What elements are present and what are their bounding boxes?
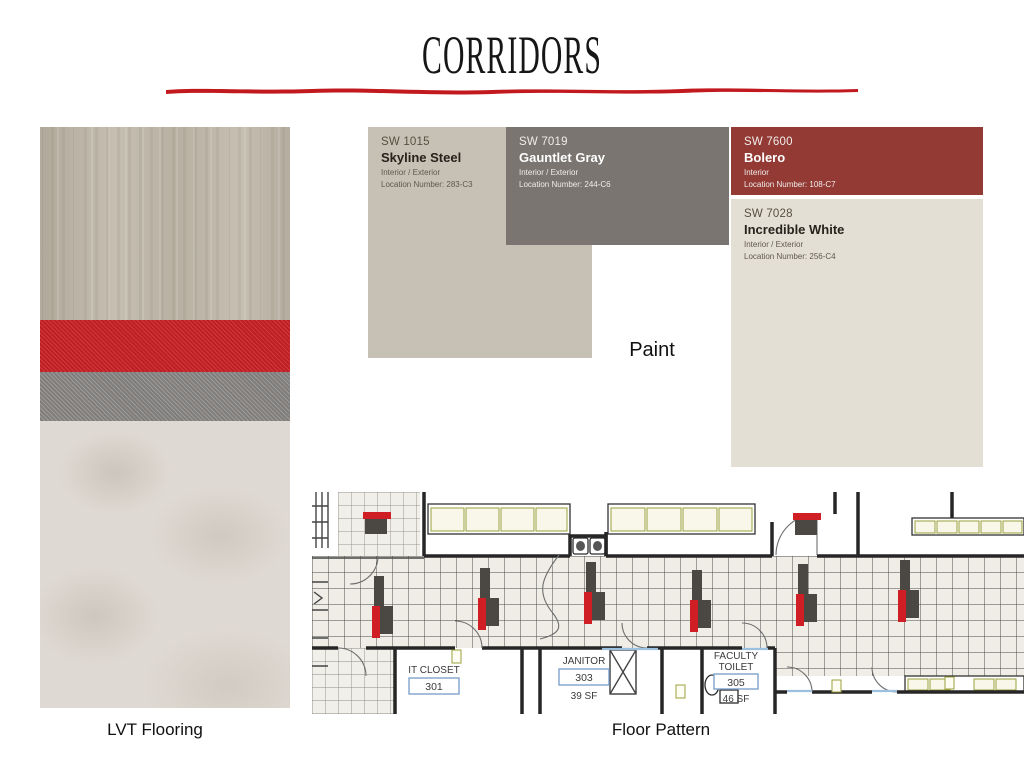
title-underline-rule	[162, 82, 862, 98]
chip-code: SW 7019	[519, 136, 716, 148]
chip-code: SW 7600	[744, 136, 970, 148]
room-name: JANITOR	[563, 656, 606, 667]
floor-pattern-plan: IT CLOSET 301 JANITOR 303 39 SF FACULTY …	[312, 492, 1024, 714]
chip-code: SW 7028	[744, 208, 970, 220]
shaft-symbol	[610, 650, 636, 694]
chip-usage: Interior	[744, 168, 970, 177]
room-name: IT CLOSET	[408, 665, 460, 676]
lvt-section-red-stripe	[40, 320, 290, 372]
corridor-tile-field-right	[775, 648, 1024, 676]
lvt-section-gray-stripe	[40, 372, 290, 421]
chip-usage: Interior / Exterior	[744, 240, 970, 249]
chip-location: Location Number: 256-C4	[744, 252, 970, 261]
chip-location: Location Number: 108-C7	[744, 180, 970, 189]
lvt-section-stone	[40, 421, 290, 708]
floor-pattern-label: Floor Pattern	[606, 720, 716, 740]
room-name: TOILET	[719, 662, 754, 673]
casework-counter-right	[912, 518, 1024, 535]
paint-label: Paint	[602, 339, 702, 362]
chip-name: Bolero	[744, 150, 970, 165]
casework-counter-left	[428, 504, 570, 534]
lower-left-tile-field	[312, 648, 395, 714]
chip-name: Incredible White	[744, 222, 970, 237]
casework-counter-middle	[608, 504, 755, 534]
room-area: 39 SF	[571, 691, 598, 702]
room-name: FACULTY	[714, 651, 759, 662]
chip-usage: Interior / Exterior	[519, 168, 716, 177]
casework-counter-bottom-right	[905, 676, 1024, 692]
room-number: 301	[425, 681, 443, 693]
lvt-section-wood	[40, 127, 290, 320]
paint-chip-incredible-white: SW 7028 Incredible White Interior / Exte…	[731, 199, 983, 467]
room-number: 303	[575, 672, 593, 684]
room-number: 305	[727, 677, 745, 689]
chip-name: Gauntlet Gray	[519, 150, 716, 165]
lvt-flooring-swatch	[40, 127, 290, 708]
paint-chip-bolero: SW 7600 Bolero Interior Location Number:…	[731, 127, 983, 195]
page-title: CORRIDORS	[230, 24, 793, 86]
paint-chip-gauntlet-gray: SW 7019 Gauntlet Gray Interior / Exterio…	[506, 127, 729, 245]
chip-location: Location Number: 244-C6	[519, 180, 716, 189]
sink-fixtures	[570, 536, 606, 556]
room-area: 46 SF	[723, 694, 750, 705]
lvt-flooring-label: LVT Flooring	[40, 720, 270, 740]
